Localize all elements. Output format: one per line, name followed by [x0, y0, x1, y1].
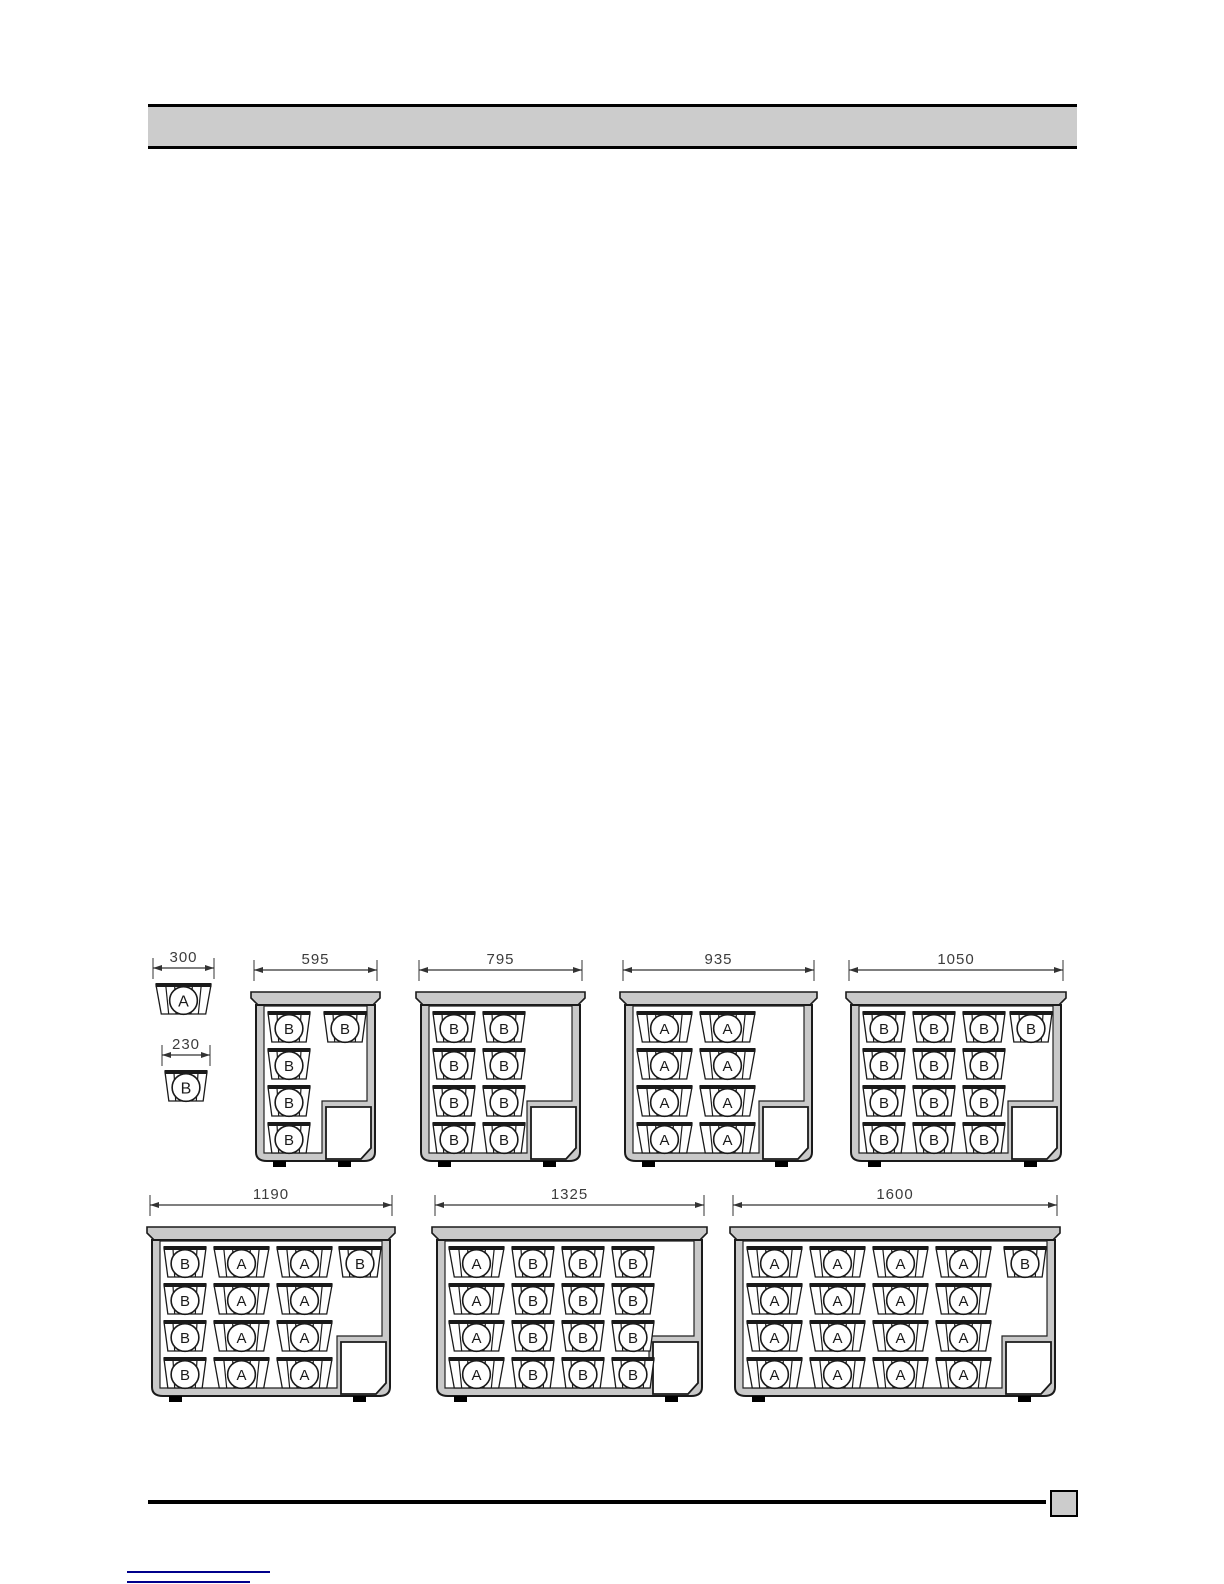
basket-letter: A: [236, 1256, 246, 1273]
basket-letter: B: [628, 1293, 638, 1310]
basket-B: B: [483, 1013, 526, 1042]
basket-B: B: [562, 1248, 605, 1277]
dimension-label: 935: [704, 951, 732, 968]
basket-letter: B: [628, 1330, 638, 1347]
basket-A: A: [277, 1285, 333, 1314]
basket-letter: B: [879, 1095, 889, 1112]
basket-letter: B: [355, 1256, 365, 1273]
basket-letter: B: [449, 1021, 459, 1038]
cabinet-lid: [620, 992, 817, 1005]
basket-letter: B: [979, 1021, 989, 1038]
basket-B: B: [268, 1124, 311, 1153]
basket-letter: A: [958, 1256, 968, 1273]
basket-B: B: [863, 1124, 906, 1153]
basket-letter: B: [284, 1132, 294, 1149]
basket-B: B: [913, 1087, 956, 1116]
dimension-label: 1325: [551, 1186, 588, 1203]
basket-B: B: [165, 1072, 208, 1101]
basket-letter: A: [299, 1330, 309, 1347]
cabinet-lid: [432, 1227, 707, 1240]
basket-letter: A: [769, 1367, 779, 1384]
basket-A: A: [936, 1248, 992, 1277]
cabinet-foot-right: [775, 1161, 788, 1167]
basket-letter: A: [471, 1330, 481, 1347]
basket-letter: B: [528, 1367, 538, 1384]
basket-letter: A: [958, 1367, 968, 1384]
basket-letter: B: [499, 1021, 509, 1038]
basket-A: A: [873, 1359, 929, 1388]
basket-A: A: [637, 1124, 693, 1153]
basket-B: B: [913, 1124, 956, 1153]
basket-letter: B: [284, 1095, 294, 1112]
dimension-line: 595: [254, 951, 377, 981]
cabinet-foot-right: [665, 1396, 678, 1402]
basket-letter: A: [722, 1058, 732, 1075]
basket-letter: A: [471, 1256, 481, 1273]
machine-compartment: [653, 1342, 698, 1394]
basket-A: A: [810, 1322, 866, 1351]
basket-letter: B: [578, 1256, 588, 1273]
basket-B: B: [863, 1013, 906, 1042]
basket-A: A: [810, 1248, 866, 1277]
basket-letter: B: [284, 1021, 294, 1038]
basket-letter: A: [832, 1256, 842, 1273]
basket-B: B: [963, 1013, 1006, 1042]
basket-A: A: [449, 1322, 505, 1351]
cabinet-foot-left: [454, 1396, 467, 1402]
basket-letter: A: [236, 1367, 246, 1384]
basket-letter: B: [340, 1021, 350, 1038]
basket-letter: A: [236, 1293, 246, 1310]
dimension-line: 795: [419, 951, 582, 981]
basket-B: B: [433, 1087, 476, 1116]
basket-A: A: [700, 1050, 756, 1079]
basket-letter: A: [299, 1293, 309, 1310]
basket-B: B: [268, 1013, 311, 1042]
basket-letter: B: [979, 1058, 989, 1075]
basket-A: A: [277, 1322, 333, 1351]
cabinet-lid: [416, 992, 585, 1005]
cabinet-foot-right: [1024, 1161, 1037, 1167]
document-page: 300A230B595BBBBB795BBBBBBBB935AAAAAAAA10…: [0, 0, 1224, 1584]
basket-A: A: [214, 1248, 270, 1277]
basket-A: A: [277, 1248, 333, 1277]
basket-letter: B: [1026, 1021, 1036, 1038]
dimension-label: 795: [486, 951, 514, 968]
basket-letter: A: [722, 1021, 732, 1038]
basket-letter: A: [471, 1293, 481, 1310]
basket-letter: B: [1020, 1256, 1030, 1273]
basket-letter: B: [628, 1367, 638, 1384]
dimension-line: 935: [623, 951, 814, 981]
basket-B: B: [963, 1124, 1006, 1153]
basket-A: A: [449, 1359, 505, 1388]
basket-letter: A: [659, 1132, 669, 1149]
basket-B: B: [963, 1087, 1006, 1116]
basket-letter: A: [895, 1256, 905, 1273]
basket-letter: B: [628, 1256, 638, 1273]
basket-letter: B: [499, 1132, 509, 1149]
dimension-line: 230: [162, 1036, 210, 1066]
basket-B: B: [1004, 1248, 1047, 1277]
basket-letter: B: [180, 1330, 190, 1347]
basket-A: A: [700, 1124, 756, 1153]
cabinet-lid: [846, 992, 1066, 1005]
footnote-link-line: [127, 1571, 270, 1573]
basket-letter: B: [879, 1132, 889, 1149]
basket-B: B: [324, 1013, 367, 1042]
basket-letter: A: [299, 1367, 309, 1384]
basket-A: A: [936, 1359, 992, 1388]
basket-letter: B: [449, 1132, 459, 1149]
basket-A: A: [747, 1248, 803, 1277]
basket-letter: B: [929, 1021, 939, 1038]
basket-letter: B: [180, 1293, 190, 1310]
machine-compartment: [531, 1107, 576, 1159]
basket-letter: A: [832, 1330, 842, 1347]
basket-A: A: [810, 1359, 866, 1388]
cabinet-foot-right: [543, 1161, 556, 1167]
basket-B: B: [164, 1285, 207, 1314]
basket-B: B: [433, 1050, 476, 1079]
basket-letter: B: [499, 1058, 509, 1075]
basket-A: A: [936, 1285, 992, 1314]
basket-letter: A: [659, 1021, 669, 1038]
basket-letter: A: [722, 1132, 732, 1149]
cabinet-795-diagram: 795BBBBBBBB: [416, 946, 585, 1172]
machine-compartment: [326, 1107, 371, 1159]
basket-B: B: [433, 1124, 476, 1153]
dimension-label: 230: [172, 1036, 200, 1053]
basket-B: B: [164, 1322, 207, 1351]
basket-letter: B: [528, 1256, 538, 1273]
basket-A: A: [214, 1322, 270, 1351]
basket-A: A: [747, 1322, 803, 1351]
dimension-line: 1190: [150, 1186, 392, 1216]
basket-A: A: [747, 1359, 803, 1388]
basket-B: B: [512, 1285, 555, 1314]
cabinet-1050-diagram: 1050BBBBBBBBBBBBB: [846, 946, 1066, 1172]
dimension-label: 1190: [253, 1186, 289, 1203]
legend-basket-B: 230B: [159, 1031, 213, 1109]
diagram-layer: 300A230B595BBBBB795BBBBBBBB935AAAAAAAA10…: [0, 0, 1224, 1584]
cabinet-935-diagram: 935AAAAAAAA: [620, 946, 817, 1172]
basket-A: A: [700, 1087, 756, 1116]
basket-B: B: [512, 1322, 555, 1351]
basket-B: B: [483, 1124, 526, 1153]
dimension-line: 300: [153, 949, 214, 979]
basket-letter: B: [979, 1132, 989, 1149]
dimension-label: 1600: [876, 1186, 913, 1203]
basket-letter: B: [929, 1132, 939, 1149]
dimension-line: 1050: [849, 951, 1063, 981]
cabinet-1190-diagram: 1190BBBBAAAAAAAAB: [147, 1181, 395, 1407]
dimension-line: 1600: [733, 1186, 1057, 1216]
basket-B: B: [433, 1013, 476, 1042]
cabinet-lid: [251, 992, 380, 1005]
cabinet-foot-left: [169, 1396, 182, 1402]
basket-A: A: [873, 1285, 929, 1314]
basket-B: B: [562, 1322, 605, 1351]
cabinet-foot-left: [868, 1161, 881, 1167]
dimension-line: 1325: [435, 1186, 704, 1216]
page-number-box: [1050, 1490, 1078, 1517]
basket-B: B: [863, 1087, 906, 1116]
legend-basket-A: 300A: [150, 944, 217, 1022]
basket-letter: A: [471, 1367, 481, 1384]
basket-letter: A: [895, 1367, 905, 1384]
basket-letter: A: [958, 1293, 968, 1310]
basket-letter: B: [879, 1021, 889, 1038]
machine-compartment: [1012, 1107, 1057, 1159]
basket-B: B: [612, 1359, 655, 1388]
basket-B: B: [562, 1359, 605, 1388]
dimension-label: 300: [169, 949, 197, 966]
basket-A: A: [214, 1285, 270, 1314]
basket-letter: A: [722, 1095, 732, 1112]
cabinet-foot-left: [752, 1396, 765, 1402]
basket-B: B: [512, 1248, 555, 1277]
basket-A: A: [214, 1359, 270, 1388]
basket-A: A: [873, 1248, 929, 1277]
machine-compartment: [1006, 1342, 1051, 1394]
basket-A: A: [156, 985, 212, 1014]
basket-B: B: [612, 1248, 655, 1277]
basket-A: A: [637, 1087, 693, 1116]
cabinet-595-diagram: 595BBBBB: [251, 946, 380, 1172]
cabinet-lid: [147, 1227, 395, 1240]
basket-letter: A: [299, 1256, 309, 1273]
basket-A: A: [637, 1050, 693, 1079]
basket-A: A: [449, 1248, 505, 1277]
basket-B: B: [339, 1248, 382, 1277]
cabinet-foot-left: [273, 1161, 286, 1167]
basket-B: B: [164, 1359, 207, 1388]
basket-B: B: [612, 1322, 655, 1351]
basket-B: B: [913, 1050, 956, 1079]
basket-letter: B: [528, 1293, 538, 1310]
basket-letter: B: [284, 1058, 294, 1075]
basket-letter: B: [449, 1058, 459, 1075]
basket-letter: B: [578, 1293, 588, 1310]
dimension-label: 595: [301, 951, 329, 968]
cabinet-1600-diagram: 1600AAAAAAAAAAAAAAAAB: [730, 1181, 1060, 1407]
basket-letter: A: [832, 1293, 842, 1310]
basket-B: B: [164, 1248, 207, 1277]
basket-letter: B: [929, 1095, 939, 1112]
basket-letter: A: [769, 1330, 779, 1347]
basket-letter: B: [879, 1058, 889, 1075]
basket-A: A: [810, 1285, 866, 1314]
machine-compartment: [763, 1107, 808, 1159]
basket-A: A: [449, 1285, 505, 1314]
basket-letter: A: [236, 1330, 246, 1347]
basket-A: A: [637, 1013, 693, 1042]
basket-B: B: [1010, 1013, 1053, 1042]
basket-B: B: [562, 1285, 605, 1314]
footer-rule: [148, 1500, 1046, 1504]
basket-letter: B: [499, 1095, 509, 1112]
basket-letter: B: [929, 1058, 939, 1075]
basket-A: A: [277, 1359, 333, 1388]
basket-letter: B: [180, 1256, 190, 1273]
cabinet-foot-left: [438, 1161, 451, 1167]
basket-letter: A: [958, 1330, 968, 1347]
basket-B: B: [512, 1359, 555, 1388]
basket-B: B: [913, 1013, 956, 1042]
basket-letter: A: [832, 1367, 842, 1384]
basket-letter: B: [578, 1367, 588, 1384]
basket-letter: A: [659, 1058, 669, 1075]
basket-A: A: [700, 1013, 756, 1042]
basket-letter: A: [178, 993, 189, 1010]
cabinet-lid: [730, 1227, 1060, 1240]
basket-letter: B: [528, 1330, 538, 1347]
basket-letter: A: [895, 1293, 905, 1310]
basket-A: A: [873, 1322, 929, 1351]
basket-letter: B: [180, 1367, 190, 1384]
basket-A: A: [747, 1285, 803, 1314]
basket-B: B: [483, 1087, 526, 1116]
basket-B: B: [863, 1050, 906, 1079]
basket-A: A: [936, 1322, 992, 1351]
basket-letter: B: [449, 1095, 459, 1112]
basket-B: B: [963, 1050, 1006, 1079]
cabinet-foot-right: [338, 1161, 351, 1167]
cabinet-foot-right: [1018, 1396, 1031, 1402]
basket-letter: B: [979, 1095, 989, 1112]
footnote-link-line-2: [127, 1581, 250, 1583]
basket-letter: A: [895, 1330, 905, 1347]
machine-compartment: [341, 1342, 386, 1394]
basket-letter: A: [769, 1256, 779, 1273]
cabinet-foot-left: [642, 1161, 655, 1167]
basket-B: B: [268, 1087, 311, 1116]
cabinet-foot-right: [353, 1396, 366, 1402]
basket-B: B: [268, 1050, 311, 1079]
basket-B: B: [612, 1285, 655, 1314]
cabinet-1325-diagram: 1325AAAABBBBBBBBBBBB: [432, 1181, 707, 1407]
basket-letter: B: [181, 1080, 192, 1097]
basket-B: B: [483, 1050, 526, 1079]
dimension-label: 1050: [937, 951, 974, 968]
basket-letter: A: [659, 1095, 669, 1112]
basket-letter: A: [769, 1293, 779, 1310]
basket-letter: B: [578, 1330, 588, 1347]
